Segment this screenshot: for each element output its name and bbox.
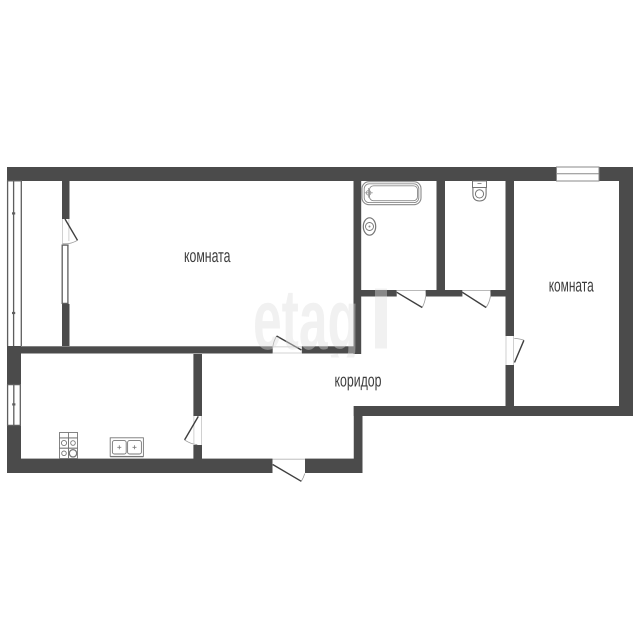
svg-text:etag: etag xyxy=(253,272,359,368)
svg-text:коридор: коридор xyxy=(335,370,382,391)
svg-text:комната: комната xyxy=(184,245,231,266)
svg-text:комната: комната xyxy=(549,275,594,296)
